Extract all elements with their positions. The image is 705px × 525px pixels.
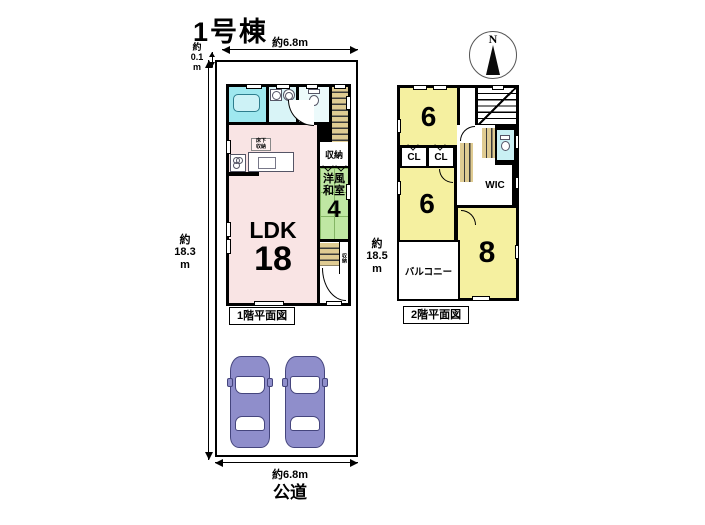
dimension-line-bottom [215, 462, 358, 463]
car-windshield [235, 376, 265, 394]
washitsu-room: 洋風 和室 4 [320, 168, 348, 239]
entrance-steps [320, 243, 339, 266]
ldk-label-group: LDK 18 [229, 220, 317, 276]
window-marker [346, 184, 351, 200]
floor2-caption: 2階平面図 [403, 306, 469, 324]
toilet-icon [501, 141, 510, 151]
balcony-label: バルコニー [399, 264, 458, 278]
ldk-label: LDK [249, 220, 296, 242]
washitsu-label: 洋風 和室 [320, 173, 348, 198]
toilet-tank-icon [308, 89, 320, 94]
stairs-corridor-b [460, 143, 473, 182]
road-label: 公道 [246, 478, 334, 503]
stove-icon [230, 154, 246, 172]
window-marker [472, 296, 490, 301]
dimension-top-width: 約6.8m [250, 34, 330, 50]
window-marker [226, 140, 231, 154]
dimension-height-left: 約 18.3 m [168, 234, 202, 271]
kitchen-counter [248, 152, 294, 172]
car-windshield [290, 376, 320, 394]
toilet-tank-icon [500, 135, 510, 140]
hall-door-arc [288, 100, 314, 126]
ldk-size: 18 [254, 242, 292, 276]
car-rear-window [290, 416, 320, 431]
closet-cl2: CL [429, 148, 453, 166]
window-marker [346, 96, 351, 110]
dimension-height-right: 約 18.5 m [360, 238, 394, 275]
north-compass: N [469, 31, 517, 79]
underfloor-storage-label: 床下 収納 [251, 138, 271, 151]
floor1-building: 床下 収納 LDK 18 収納 洋風 和室 4 [226, 84, 351, 306]
window-marker [276, 84, 290, 89]
wic-label: WIC [485, 180, 504, 191]
window-marker [254, 301, 284, 306]
car-rear-window [235, 416, 265, 431]
room-size: 6 [421, 101, 437, 133]
car-mirror [267, 378, 273, 387]
car-body [230, 356, 270, 448]
cl-label: CL [407, 152, 420, 163]
car-mirror [322, 378, 328, 387]
floor-plan-page: 1号棟 約6.8m 約 0.1 m 約 18.3 m 約 18.5 m [0, 0, 705, 525]
sink-icon [270, 89, 282, 101]
car-mirror [282, 378, 288, 387]
car-mirror [227, 378, 233, 387]
car-body [285, 356, 325, 448]
entrance-area: 収納 [320, 242, 348, 303]
window-marker [492, 85, 504, 90]
bathroom [229, 87, 266, 122]
window-marker [226, 222, 231, 237]
floor1-caption: 1階平面図 [229, 307, 295, 325]
wic-room: WIC [478, 165, 512, 205]
window-marker [515, 177, 519, 189]
cl-label: CL [434, 152, 447, 163]
closet-cl1: CL [402, 148, 426, 166]
window-marker [433, 85, 447, 90]
bedroom-6-top: 6 [400, 88, 457, 145]
window-marker [515, 245, 519, 259]
north-arrow-icon [486, 45, 500, 75]
storage-label: 収納 [325, 148, 343, 161]
window-marker [246, 84, 262, 89]
toilet-room-f2 [497, 130, 514, 160]
window-marker [334, 84, 346, 89]
window-marker [306, 84, 318, 89]
car-icon [230, 356, 270, 448]
entrance-door-arc [322, 268, 346, 301]
car-icon [285, 356, 325, 448]
hall-f2-top [460, 88, 475, 125]
bathtub-icon [233, 94, 260, 112]
kitchen-wall-stub [229, 172, 259, 176]
window-marker [397, 119, 401, 133]
window-marker [413, 85, 427, 90]
window-marker [515, 135, 519, 149]
room-size: 6 [419, 188, 435, 220]
dimension-line-left [208, 60, 209, 460]
stairs-corridor-a [482, 128, 495, 158]
floor2-building: 6 CL CL 6 WIC [397, 85, 519, 301]
entrance-opening [326, 301, 342, 306]
washitsu-size: 4 [320, 198, 348, 222]
window-marker [397, 181, 401, 195]
stairs-f2 [478, 88, 516, 125]
window-marker [226, 239, 231, 254]
balcony: バルコニー [397, 240, 460, 301]
room-size: 8 [479, 236, 496, 270]
